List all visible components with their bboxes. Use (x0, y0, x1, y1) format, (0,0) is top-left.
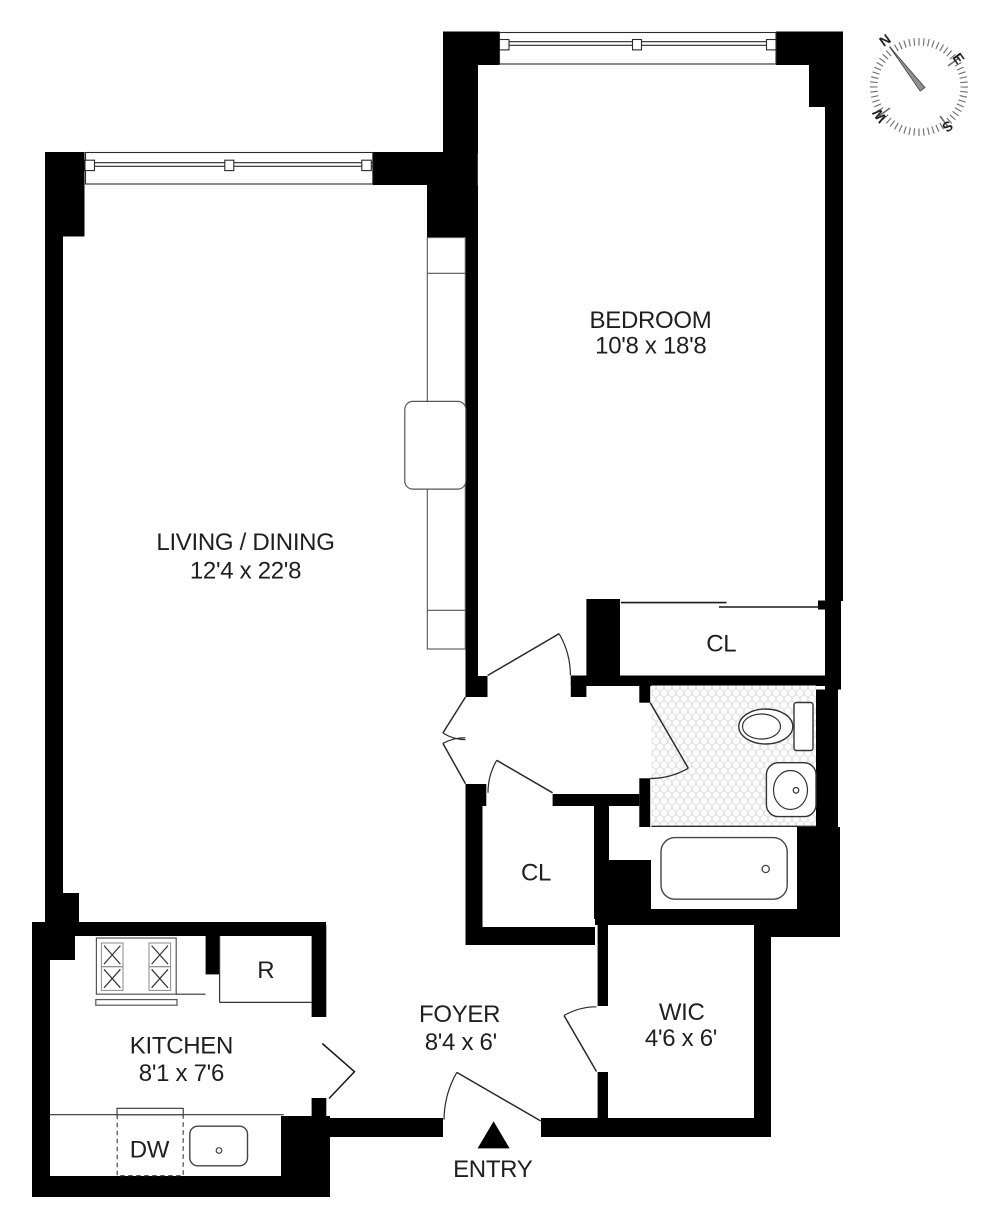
svg-text:CL: CL (521, 860, 551, 887)
svg-text:R: R (257, 957, 274, 984)
svg-text:LIVING / DINING: LIVING / DINING (156, 529, 334, 556)
svg-text:12'4 x 22'8: 12'4 x 22'8 (190, 557, 301, 584)
svg-text:FOYER: FOYER (419, 1001, 500, 1028)
svg-text:DW: DW (130, 1137, 170, 1164)
svg-text:ENTRY: ENTRY (453, 1156, 533, 1183)
svg-text:WIC: WIC (659, 999, 705, 1026)
svg-text:CL: CL (706, 631, 736, 658)
svg-text:KITCHEN: KITCHEN (130, 1033, 233, 1060)
svg-text:10'8 x 18'8: 10'8 x 18'8 (595, 333, 706, 360)
svg-text:4'6 x 6': 4'6 x 6' (645, 1025, 717, 1052)
svg-text:BEDROOM: BEDROOM (590, 307, 712, 334)
svg-text:8'4 x 6': 8'4 x 6' (425, 1029, 497, 1056)
svg-text:8'1 x 7'6: 8'1 x 7'6 (139, 1060, 224, 1087)
